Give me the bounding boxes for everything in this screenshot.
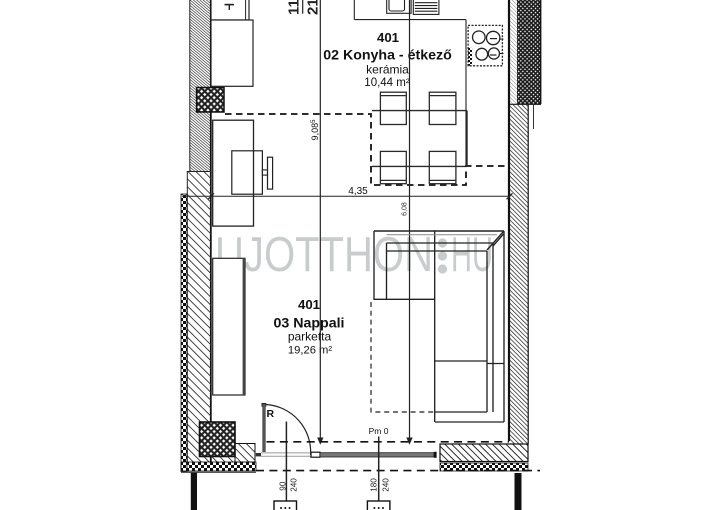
svg-text:6,08: 6,08: [402, 202, 409, 216]
svg-text:240: 240: [382, 478, 391, 492]
svg-text:10,44 m²: 10,44 m²: [364, 77, 410, 89]
svg-text:UJOTTHON: UJOTTHON: [215, 228, 433, 282]
svg-text:90: 90: [278, 481, 287, 491]
svg-text:parketta: parketta: [288, 330, 332, 344]
svg-text:11: 11: [286, 0, 303, 15]
svg-text:02 Konyha - étkező: 02 Konyha - étkező: [323, 48, 452, 64]
svg-text:Pm 0: Pm 0: [369, 426, 389, 436]
svg-text:180: 180: [370, 478, 379, 492]
svg-text:kerámia: kerámia: [366, 63, 409, 77]
svg-text:240: 240: [289, 478, 298, 492]
svg-text:401: 401: [377, 30, 399, 45]
svg-text:R: R: [267, 408, 275, 420]
svg-text:19,26 m²: 19,26 m²: [288, 345, 332, 357]
svg-text:21: 21: [305, 0, 322, 15]
svg-text:401: 401: [298, 297, 320, 312]
svg-text:4,35: 4,35: [348, 186, 368, 197]
